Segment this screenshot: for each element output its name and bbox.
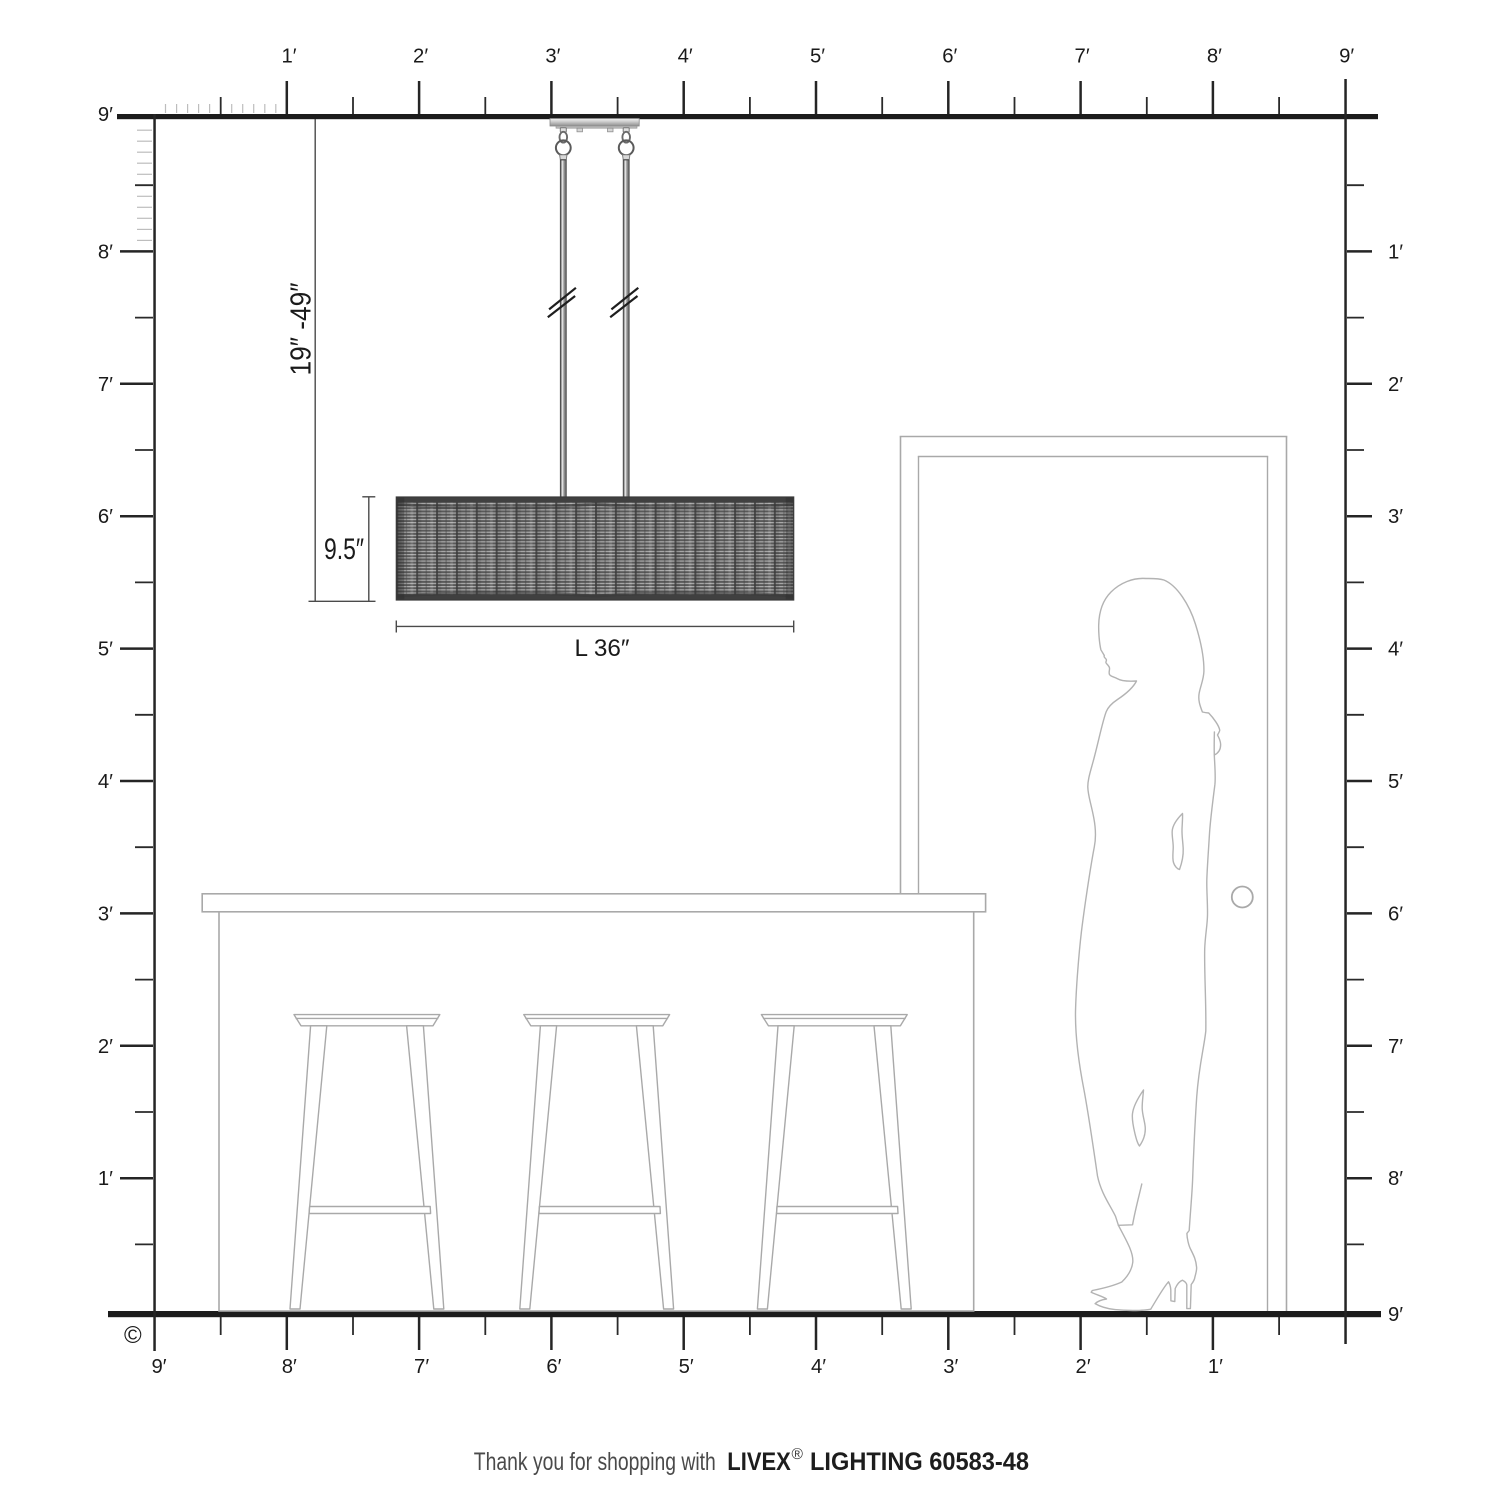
svg-text:4′: 4′ — [1388, 639, 1403, 661]
svg-text:19″ -49″: 19″ -49″ — [286, 283, 318, 376]
svg-text:5′: 5′ — [1388, 771, 1403, 793]
svg-text:3′: 3′ — [1388, 506, 1403, 528]
svg-text:3′: 3′ — [98, 903, 113, 925]
svg-text:8′: 8′ — [1207, 46, 1222, 68]
svg-text:5′: 5′ — [98, 639, 113, 661]
svg-text:6′: 6′ — [1388, 903, 1403, 925]
svg-text:8′: 8′ — [282, 1356, 297, 1378]
svg-text:9′: 9′ — [98, 104, 113, 126]
svg-text:4′: 4′ — [811, 1356, 826, 1378]
svg-text:7′: 7′ — [1388, 1036, 1403, 1058]
svg-text:9′: 9′ — [1339, 46, 1354, 68]
svg-text:1′: 1′ — [1208, 1356, 1223, 1378]
svg-text:8′: 8′ — [1388, 1168, 1403, 1190]
svg-text:2′: 2′ — [1388, 374, 1403, 396]
svg-text:8′: 8′ — [98, 241, 113, 263]
svg-text:9.5″: 9.5″ — [324, 533, 364, 566]
svg-text:©: © — [124, 1322, 142, 1349]
svg-text:3′: 3′ — [943, 1356, 958, 1378]
svg-text:2′: 2′ — [98, 1036, 113, 1058]
svg-text:4′: 4′ — [678, 46, 693, 68]
svg-text:5′: 5′ — [810, 46, 825, 68]
svg-text:6′: 6′ — [98, 506, 113, 528]
svg-text:3′: 3′ — [545, 46, 560, 68]
svg-text:LIGHTING 60583-48: LIGHTING 60583-48 — [810, 1448, 1029, 1476]
svg-text:5′: 5′ — [679, 1356, 694, 1378]
svg-text:LIVEX: LIVEX — [727, 1448, 791, 1476]
svg-text:7′: 7′ — [98, 374, 113, 396]
svg-text:7′: 7′ — [414, 1356, 429, 1378]
svg-text:6′: 6′ — [546, 1356, 561, 1378]
svg-text:L 36″: L 36″ — [575, 635, 630, 662]
svg-text:4′: 4′ — [98, 771, 113, 793]
svg-text:7′: 7′ — [1075, 46, 1090, 68]
svg-text:1′: 1′ — [98, 1168, 113, 1190]
svg-text:2′: 2′ — [413, 46, 428, 68]
svg-text:9′: 9′ — [1388, 1304, 1403, 1326]
svg-text:2′: 2′ — [1076, 1356, 1091, 1378]
svg-text:6′: 6′ — [942, 46, 957, 68]
svg-text:®: ® — [792, 1446, 804, 1463]
svg-text:Thank you for shopping with: Thank you for shopping with — [474, 1448, 716, 1476]
svg-text:1′: 1′ — [1388, 241, 1403, 263]
svg-text:9′: 9′ — [151, 1356, 166, 1378]
svg-text:1′: 1′ — [281, 46, 296, 68]
